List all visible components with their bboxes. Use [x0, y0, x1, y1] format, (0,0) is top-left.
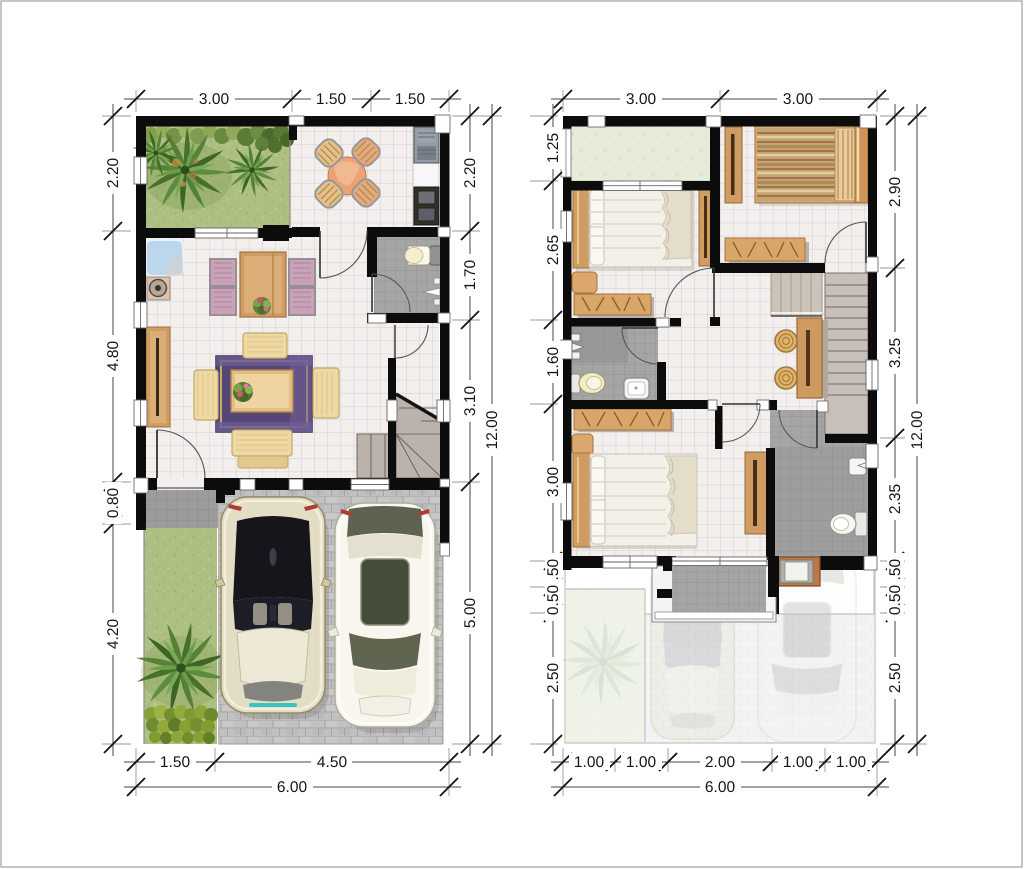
svg-text:0.50: 0.50: [545, 585, 562, 616]
svg-text:0.80: 0.80: [105, 488, 122, 519]
svg-text:12.00: 12.00: [484, 410, 501, 449]
svg-text:3.10: 3.10: [462, 386, 479, 417]
svg-text:1.50: 1.50: [316, 91, 347, 108]
svg-text:1.50: 1.50: [160, 754, 191, 771]
svg-text:3.00: 3.00: [626, 91, 657, 108]
svg-text:2.90: 2.90: [887, 177, 904, 208]
svg-text:2.20: 2.20: [462, 158, 479, 189]
svg-text:1.50: 1.50: [395, 91, 426, 108]
svg-text:2.20: 2.20: [105, 158, 122, 189]
svg-text:1.00: 1.00: [574, 754, 605, 771]
svg-text:1.70: 1.70: [462, 260, 479, 291]
svg-text:6.00: 6.00: [277, 779, 308, 796]
svg-text:12.00: 12.00: [909, 410, 926, 449]
svg-text:3.00: 3.00: [783, 91, 814, 108]
svg-text:0.50: 0.50: [887, 585, 904, 616]
svg-text:4.80: 4.80: [105, 341, 122, 372]
svg-text:2.65: 2.65: [545, 235, 562, 265]
svg-text:6.00: 6.00: [705, 779, 736, 796]
svg-text:3.25: 3.25: [887, 338, 904, 368]
svg-text:5.00: 5.00: [462, 598, 479, 629]
svg-text:2.00: 2.00: [705, 754, 736, 771]
svg-text:1.00: 1.00: [783, 754, 814, 771]
svg-text:1.60: 1.60: [545, 347, 562, 378]
svg-text:1.25: 1.25: [545, 133, 562, 163]
svg-text:3.00: 3.00: [199, 91, 230, 108]
svg-text:4.50: 4.50: [317, 754, 348, 771]
svg-text:3.00: 3.00: [545, 467, 562, 498]
svg-text:2.50: 2.50: [545, 663, 562, 694]
svg-text:1.00: 1.00: [836, 754, 867, 771]
svg-text:2.50: 2.50: [887, 663, 904, 694]
svg-text:4.20: 4.20: [105, 619, 122, 650]
svg-text:2.35: 2.35: [887, 484, 904, 514]
svg-text:1.00: 1.00: [626, 754, 657, 771]
